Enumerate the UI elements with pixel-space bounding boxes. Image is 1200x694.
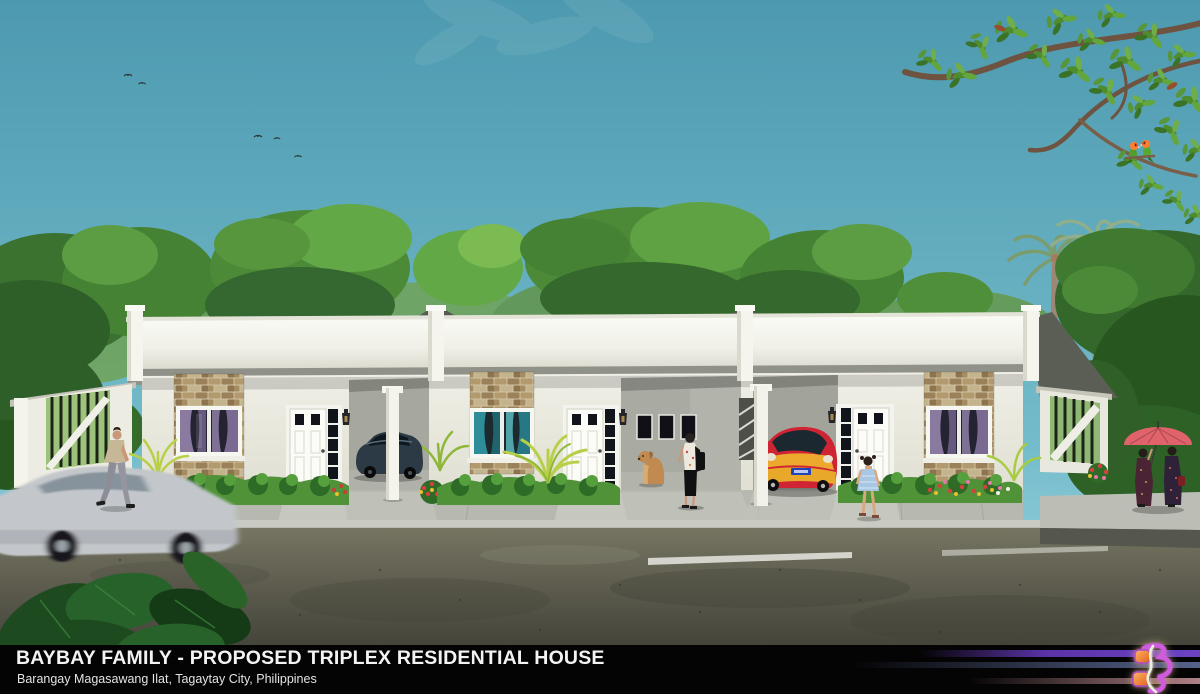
designer-logo	[1120, 641, 1178, 694]
unit1-window	[173, 406, 245, 461]
scene-illustration	[0, 0, 1200, 645]
logo-orange-pad-top	[1135, 650, 1150, 663]
parapet-fascia	[128, 316, 1038, 371]
rendering-board: BAYBAY FAMILY - PROPOSED TRIPLEX RESIDEN…	[0, 0, 1200, 694]
right-fence	[1036, 386, 1112, 474]
project-title: BAYBAY FAMILY - PROPOSED TRIPLEX RESIDEN…	[16, 647, 605, 670]
unit2-window	[467, 408, 537, 463]
unit3-window	[923, 406, 995, 463]
caption-bar: BAYBAY FAMILY - PROPOSED TRIPLEX RESIDEN…	[0, 645, 1200, 694]
project-location: Barangay Magasawang Ilat, Tagaytay City,…	[17, 672, 317, 686]
